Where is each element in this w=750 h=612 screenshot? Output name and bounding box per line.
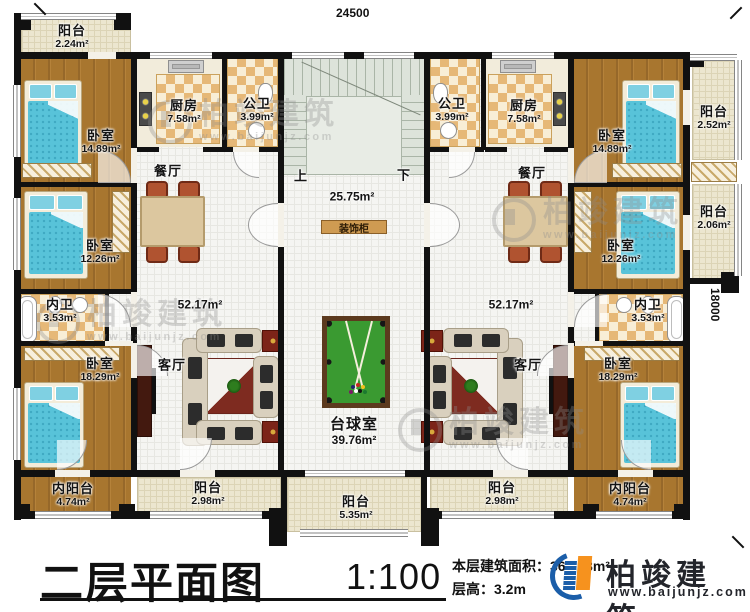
pillow xyxy=(29,195,55,210)
room-label-dining-right: 餐厅 xyxy=(518,167,546,182)
decor-cabinet-label: 装饰柜 xyxy=(339,220,369,235)
brand-name: 柏竣建筑 xyxy=(606,550,743,612)
room-label-balcony-top-left: 阳台2.24m² xyxy=(55,24,88,50)
stair-flight-left xyxy=(284,95,306,175)
door-opening xyxy=(683,90,690,125)
pillow xyxy=(627,84,650,99)
corner-tick xyxy=(732,536,745,549)
title-underline xyxy=(40,598,446,601)
billiard-balls xyxy=(356,383,360,387)
stair-up-label: 上 xyxy=(294,170,308,185)
room-label-balcony-center: 阳台5.35m² xyxy=(339,495,372,521)
room-label-living-right: 客厅 xyxy=(514,359,542,374)
balcony-right-mid-floor xyxy=(692,184,736,279)
rug xyxy=(444,358,499,414)
kitchen-sink xyxy=(500,60,536,73)
wall xyxy=(131,52,137,477)
pillow xyxy=(625,386,649,401)
dimension-top: 24500 xyxy=(336,6,369,20)
dining-chair xyxy=(178,245,200,263)
window xyxy=(292,52,344,59)
brand-logo: 柏竣建筑 www.baijunjz.com xyxy=(548,548,743,606)
wall xyxy=(14,289,137,294)
door-opening xyxy=(575,341,603,346)
window xyxy=(300,529,408,537)
room-label-bedroom-botleft: 卧室18.29m² xyxy=(80,357,119,383)
wardrobe xyxy=(22,163,92,178)
mattress xyxy=(626,101,675,169)
wall xyxy=(278,52,284,477)
sofa xyxy=(196,328,262,353)
wall xyxy=(222,57,227,150)
wall-pier xyxy=(14,504,30,519)
room-label-balcony-bottom-left: 阳台2.98m² xyxy=(191,481,224,507)
plan-title: 二层平面图 xyxy=(40,549,265,611)
wall-pier xyxy=(119,504,135,519)
plant xyxy=(227,379,241,393)
room-label-billiard: 台球室39.76m² xyxy=(330,417,378,447)
hall-area-label: 25.75m² xyxy=(330,190,375,203)
plant xyxy=(465,379,479,393)
wall-pier xyxy=(269,508,287,546)
room-label-inner-balcony-left: 内阳台4.74m² xyxy=(52,482,94,508)
armchair xyxy=(253,356,279,418)
room-label-balcony-right-mid: 阳台2.06m² xyxy=(697,205,730,231)
window xyxy=(734,60,742,160)
window xyxy=(734,184,742,276)
wall-pier xyxy=(421,508,439,546)
room-label-ensuite-left: 内卫3.53m² xyxy=(43,298,76,324)
pillow xyxy=(57,195,83,210)
billiard-cue xyxy=(345,321,363,389)
wall xyxy=(568,289,690,294)
wall xyxy=(424,52,430,477)
dining-table xyxy=(140,196,205,247)
window xyxy=(13,198,21,270)
wall-pier xyxy=(114,13,131,30)
pillow xyxy=(29,386,53,401)
mattress xyxy=(29,212,84,274)
door-opening xyxy=(88,52,116,59)
door-opening xyxy=(55,470,90,477)
pillow xyxy=(651,386,675,401)
door-opening xyxy=(568,148,574,183)
logo-building-blue xyxy=(563,560,577,590)
door-opening xyxy=(618,470,653,477)
dimension-right: 18000 xyxy=(708,288,722,321)
room-label-bedroom-botright: 卧室18.29m² xyxy=(598,357,637,383)
room-label-bath-right: 公卫3.99m² xyxy=(435,97,468,123)
window xyxy=(150,511,262,519)
wash-basin xyxy=(248,122,265,139)
logo-building-orange xyxy=(576,556,592,590)
room-label-balcony-right-top: 阳台2.52m² xyxy=(697,105,730,131)
room-label-bedroom-midleft: 卧室12.26m² xyxy=(80,239,119,265)
stove xyxy=(553,92,566,126)
room-label-bedroom-topright: 卧室14.89m² xyxy=(592,129,631,155)
window xyxy=(35,511,111,519)
window xyxy=(150,52,212,59)
brand-logo-icon xyxy=(548,550,600,602)
door-opening xyxy=(278,203,284,247)
pillow xyxy=(649,195,675,210)
dining-chair xyxy=(540,245,562,263)
bed xyxy=(622,80,680,174)
bed xyxy=(616,191,680,279)
room-label-living-right-area: 52.17m² xyxy=(489,298,534,311)
wall xyxy=(137,147,159,152)
room-label-bedroom-midright: 卧室12.26m² xyxy=(601,239,640,265)
floor-height-text: 层高：3.2m xyxy=(452,579,526,599)
door-opening xyxy=(493,470,528,477)
door-opening xyxy=(180,470,215,477)
sofa xyxy=(443,328,509,353)
pillow xyxy=(621,195,647,210)
room-label-living-left-area: 52.17m² xyxy=(178,298,223,311)
floor-plan-page: 装饰柜 xyxy=(0,0,750,612)
wall-pier xyxy=(674,504,690,519)
decor-cabinet: 装饰柜 xyxy=(321,220,387,234)
pillow xyxy=(652,84,675,99)
wash-basin xyxy=(616,297,632,313)
dining-chair xyxy=(508,245,530,263)
stove xyxy=(139,92,152,126)
room-label-inner-balcony-right: 内阳台4.74m² xyxy=(609,482,651,508)
wardrobe xyxy=(574,191,592,253)
room-label-living-left: 客厅 xyxy=(158,359,186,374)
plan-scale: 1:100 xyxy=(346,556,441,598)
window xyxy=(13,388,21,460)
stair-down-label: 下 xyxy=(397,169,411,184)
room-label-kitchen-right: 厨房7.58m² xyxy=(507,99,540,125)
room-label-balcony-bottom-right: 阳台2.98m² xyxy=(485,481,518,507)
mattress xyxy=(28,101,77,169)
wall xyxy=(485,147,507,152)
window xyxy=(442,511,554,519)
wall xyxy=(203,147,227,152)
dining-table xyxy=(503,196,568,247)
window xyxy=(690,54,737,61)
pillow xyxy=(55,386,79,401)
window xyxy=(364,52,414,59)
bed xyxy=(24,191,88,279)
room-label-dining-left: 餐厅 xyxy=(154,165,182,180)
pillow xyxy=(54,84,77,99)
window xyxy=(13,85,21,157)
wardrobe xyxy=(612,163,682,178)
room-label-bedroom-topleft: 卧室14.89m² xyxy=(81,129,120,155)
door-opening xyxy=(683,215,690,250)
balcony-right-divider xyxy=(691,162,737,182)
window xyxy=(492,52,554,59)
door-opening xyxy=(131,292,137,327)
room-label-ensuite-right: 内卫3.53m² xyxy=(631,298,664,324)
wall xyxy=(481,57,486,150)
kitchen-sink xyxy=(168,60,204,73)
pillow xyxy=(29,84,52,99)
door-opening xyxy=(568,343,574,378)
door-opening xyxy=(105,341,133,346)
wall xyxy=(544,147,568,152)
window xyxy=(21,13,116,20)
billiard-cue xyxy=(354,321,372,389)
window xyxy=(596,511,672,519)
brand-url: www.baijunjz.com xyxy=(608,585,748,599)
door-opening xyxy=(131,148,137,183)
stair-landing xyxy=(306,96,402,175)
window xyxy=(305,470,405,477)
door-opening xyxy=(568,292,574,327)
corner-tick xyxy=(730,7,743,20)
billiard-table xyxy=(322,316,390,408)
dining-chair xyxy=(146,245,168,263)
room-label-kitchen-left: 厨房7.58m² xyxy=(167,99,200,125)
bed xyxy=(24,80,82,174)
wall xyxy=(568,52,574,477)
room-label-bath-left: 公卫3.99m² xyxy=(240,97,273,123)
wash-basin xyxy=(440,122,457,139)
